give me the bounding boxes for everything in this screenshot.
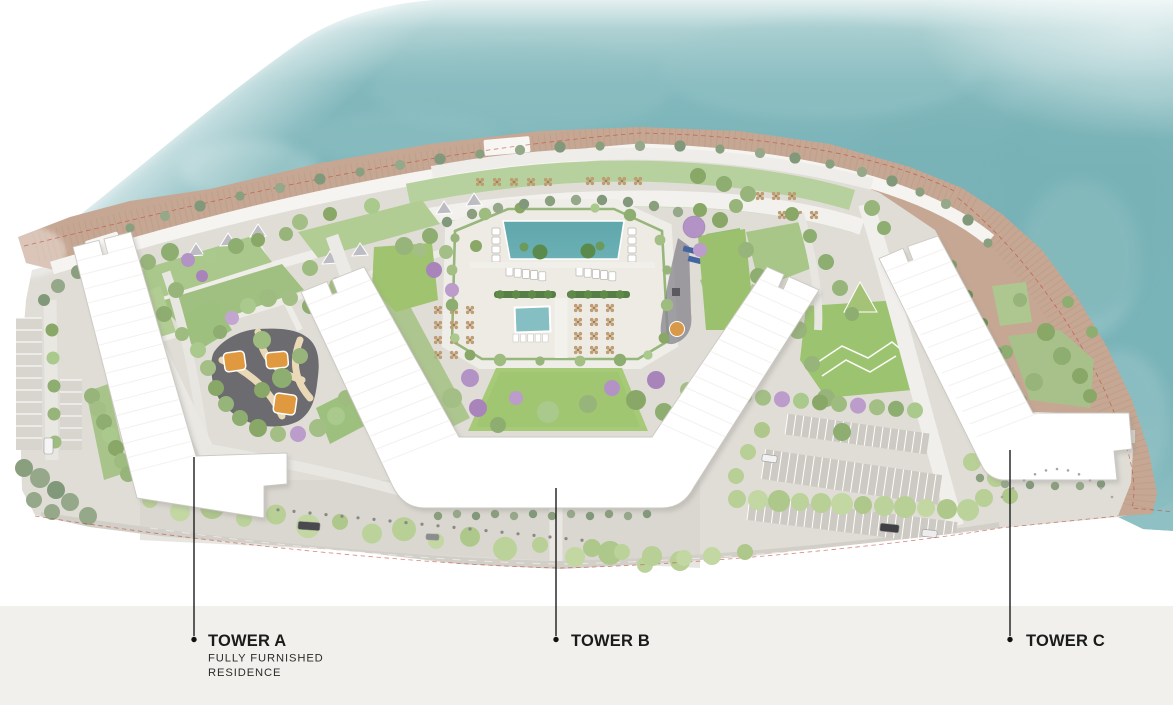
- svg-text:FULLY FURNISHED: FULLY FURNISHED: [208, 653, 324, 665]
- svg-text:TOWER A: TOWER A: [208, 632, 286, 650]
- svg-text:TOWER C: TOWER C: [1026, 632, 1105, 650]
- svg-text:RESIDENCE: RESIDENCE: [208, 667, 281, 679]
- svg-text:TOWER B: TOWER B: [571, 632, 650, 650]
